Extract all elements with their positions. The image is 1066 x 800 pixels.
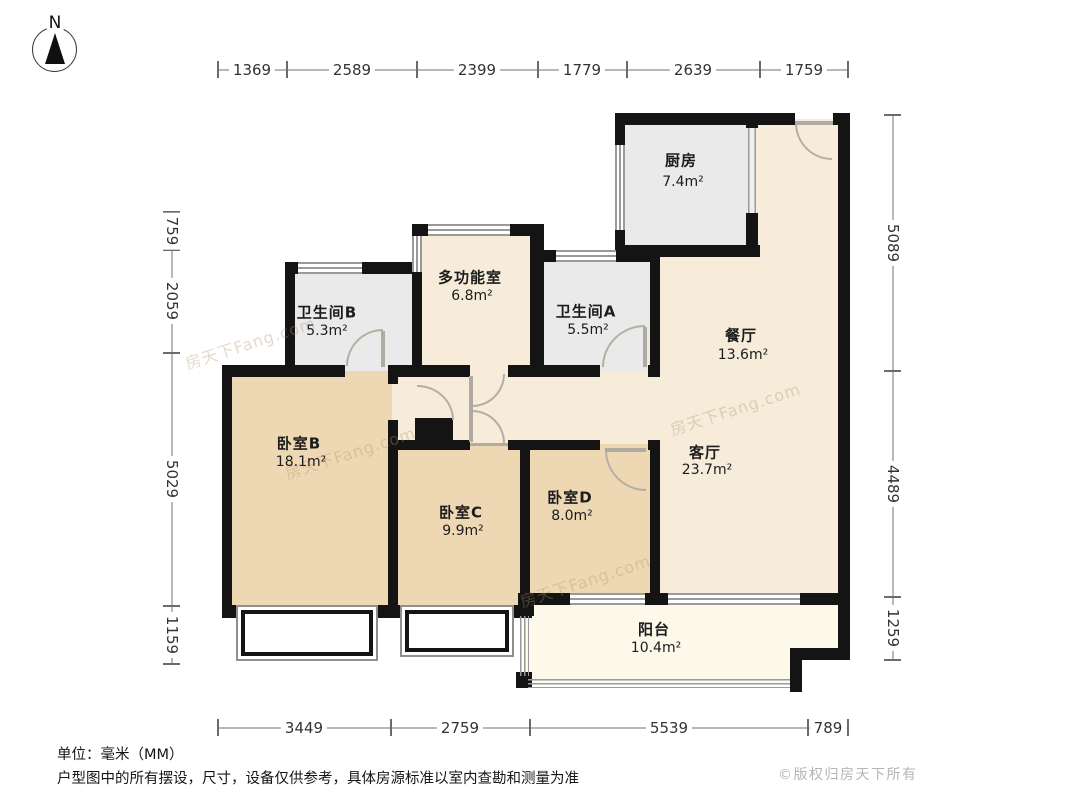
wall	[645, 593, 668, 605]
bed-b-label: 卧室B	[277, 433, 321, 454]
dim-top-3: 1779	[559, 61, 605, 79]
wall	[520, 440, 600, 450]
bed-c-door-threshold	[470, 443, 508, 446]
dim-top-1: 2589	[329, 61, 375, 79]
dimension-tick	[163, 605, 180, 607]
wall	[510, 224, 530, 236]
wall	[415, 418, 453, 440]
balcony-railing	[528, 679, 790, 688]
bed-d-door-leaf	[605, 448, 646, 452]
kitchen-window	[615, 145, 625, 230]
dining-area: 13.6m²	[718, 347, 768, 363]
bed-c-bay-window	[400, 605, 514, 657]
bath-a-window	[556, 250, 616, 262]
compass-north-label: N	[47, 13, 64, 33]
wall	[615, 113, 795, 125]
wall	[544, 250, 556, 262]
dimension-tick	[163, 663, 180, 665]
bath-a-area: 5.5m²	[567, 322, 609, 338]
bed-c-label: 卧室C	[439, 502, 483, 523]
dim-top-5: 1759	[781, 61, 827, 79]
wall	[222, 365, 345, 377]
bed-d-area: 8.0m²	[551, 508, 593, 524]
bath-b-door-leaf	[381, 331, 385, 367]
wall	[222, 365, 232, 618]
multi-room-floor	[422, 236, 530, 372]
dimension-line-right	[892, 115, 894, 660]
hall-door-leaf	[469, 376, 473, 442]
dim-bottom-3: 789	[810, 719, 847, 737]
disclaimer: 户型图中的所有摆设，尺寸，设备仅供参考，具体房源标准以室内查勘和测量为准	[57, 767, 579, 788]
kitchen-area: 7.4m²	[662, 174, 704, 190]
bed-b-floor	[228, 371, 392, 611]
dimension-tick	[884, 659, 901, 661]
dimension-tick	[163, 352, 180, 354]
balcony-area: 10.4m²	[631, 640, 681, 656]
dim-left-2: 5029	[163, 456, 181, 502]
wall	[412, 224, 428, 236]
dim-left-3: 1159	[163, 612, 181, 658]
wall	[790, 648, 802, 692]
dimension-tick	[884, 370, 901, 372]
living-label: 客厅	[689, 442, 721, 463]
multi-room-window	[428, 224, 510, 236]
dimension-tick	[847, 719, 849, 736]
wall	[615, 113, 625, 145]
bay-window-frame	[241, 610, 373, 656]
wall	[412, 272, 422, 377]
dining-label: 餐厅	[725, 325, 757, 346]
wall	[388, 377, 398, 384]
dimension-tick	[626, 61, 628, 78]
dimension-tick	[390, 719, 392, 736]
bed-d-label: 卧室D	[547, 487, 592, 508]
dimension-tick	[847, 61, 849, 78]
wall	[838, 113, 850, 660]
multi-room-side-window	[412, 236, 422, 272]
bath-b-area: 5.3m²	[306, 323, 348, 339]
dimension-tick	[416, 61, 418, 78]
bed-c-area: 9.9m²	[442, 523, 484, 539]
copyright-watermark: ©版权归房天下所有	[778, 764, 918, 784]
compass-arrow-icon	[45, 33, 65, 64]
kitchen-label: 厨房	[665, 150, 697, 171]
wall	[362, 262, 412, 274]
wall	[650, 250, 660, 377]
dimension-tick	[884, 596, 901, 598]
bath-a-label: 卫生间A	[556, 301, 617, 322]
dimension-tick	[529, 719, 531, 736]
dim-right-0: 5089	[884, 220, 902, 266]
floorplan-canvas: N 房天下Fang.com 房天下Fang.com 房天下Fang.com 房天…	[0, 0, 1066, 800]
wall	[388, 365, 470, 377]
wall	[222, 605, 236, 618]
dim-top-4: 2639	[670, 61, 716, 79]
bed-b-bay-window	[236, 605, 378, 661]
dim-top-2: 2399	[454, 61, 500, 79]
wall	[800, 593, 850, 605]
dimension-tick	[217, 61, 219, 78]
dimension-tick	[537, 61, 539, 78]
dimension-tick	[884, 114, 901, 116]
wall	[746, 213, 758, 257]
unit-note: 单位：毫米（MM）	[57, 743, 184, 764]
kitchen-sliding-door	[748, 128, 756, 213]
dim-bottom-2: 5539	[646, 719, 692, 737]
dimension-line-top	[218, 69, 848, 71]
bed-b-area: 18.1m²	[276, 454, 326, 470]
balcony-label: 阳台	[638, 619, 670, 640]
living-area: 23.7m²	[682, 462, 732, 478]
bath-b-label: 卫生间B	[297, 302, 357, 323]
wall	[650, 440, 660, 600]
balcony-window	[570, 593, 645, 605]
wall	[616, 250, 650, 262]
balcony-railing	[520, 616, 529, 676]
dim-left-0: 759	[163, 213, 181, 250]
dim-right-2: 1259	[884, 605, 902, 651]
dim-top-0: 1369	[229, 61, 275, 79]
wall	[520, 440, 530, 605]
balcony-notch	[802, 660, 844, 694]
bath-b-window	[298, 262, 362, 274]
dim-bottom-0: 3449	[281, 719, 327, 737]
dimension-tick	[217, 719, 219, 736]
wall	[746, 113, 758, 128]
bay-window-frame	[405, 610, 509, 652]
dim-right-1: 4489	[884, 461, 902, 507]
bath-a-door-leaf	[643, 327, 647, 367]
dim-left-1: 2059	[163, 278, 181, 324]
wall	[530, 224, 544, 377]
dim-bottom-1: 2759	[437, 719, 483, 737]
wall	[508, 365, 600, 377]
dimension-tick	[286, 61, 288, 78]
entry-door-leaf	[795, 121, 833, 125]
multi-room-label: 多功能室	[438, 267, 502, 288]
multi-room-area: 6.8m²	[451, 288, 493, 304]
dimension-tick	[759, 61, 761, 78]
balcony-window	[668, 593, 800, 605]
